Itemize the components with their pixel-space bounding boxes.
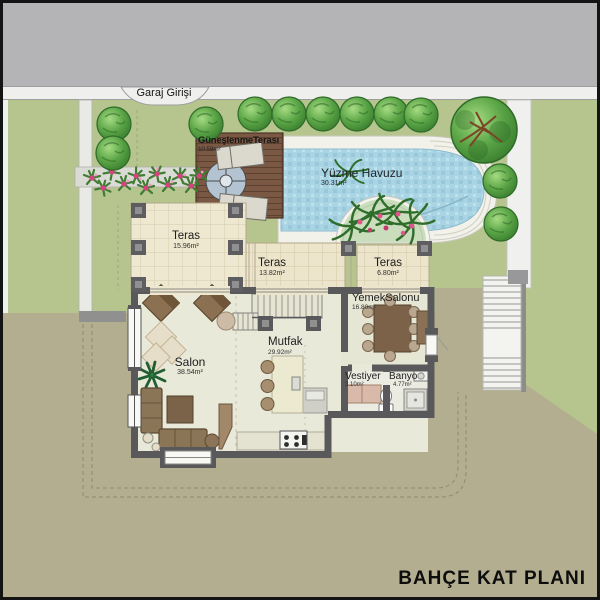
stool-icon [261,380,274,393]
window-icon [128,305,141,371]
pool-label: Yüzme Havuzu30.31m² [321,167,402,188]
sink-icon [292,377,300,390]
kitchen-label: Mutfak29.92m² [268,336,303,356]
sliding-door [150,286,230,295]
tree-icon [484,207,518,241]
tree-icon [272,97,306,131]
vestibule-label: Vestiyer3.10m² [345,371,381,389]
stool-icon [261,398,274,411]
stove-icon [280,431,307,449]
tree-icon [404,98,438,132]
side-table-icon [217,312,235,330]
end-table-icon [152,443,160,451]
window-icon [128,395,141,427]
coffee-table-icon [167,396,193,423]
floor-plan-drawing [0,0,600,600]
garage-entry-label: Garaj Girişi [114,87,214,99]
sliding-door [256,286,328,295]
stool-icon [261,361,274,374]
pouf-icon [205,434,219,448]
end-table-icon [143,433,153,443]
plan-title: BAHÇE KAT PLANI [398,569,586,590]
exterior-stairs [483,270,528,392]
tree-icon [306,97,340,131]
dining-room-label: YemekSalonu16.80m² [352,292,419,311]
shower-icon [404,389,427,411]
bay-window-icon [160,447,216,468]
dining-table-icon [374,305,411,352]
tree-icon [483,164,517,198]
road [0,0,600,88]
tree-icon [340,97,374,131]
floor-plan-canvas: Garaj Girişi Yüzme Havuzu30.31m² Güneşle… [0,0,600,600]
bathroom-label: Banyo4.77m² [389,371,417,389]
teras-left-label: Teras15.96m² [140,230,232,250]
teras-right-label: Teras6.80m² [342,257,434,277]
door-gap [341,352,348,366]
tree-icon [238,97,272,131]
tree-icon [96,136,130,170]
tree-icon [374,97,408,131]
living-room-label: Salon38.54m² [152,356,228,377]
large-tree-icon [451,97,517,163]
sun-terrace-label: GüneşlenmeTerası10.59m² [198,136,279,154]
teras-middle-label: Teras13.82m² [226,257,318,277]
